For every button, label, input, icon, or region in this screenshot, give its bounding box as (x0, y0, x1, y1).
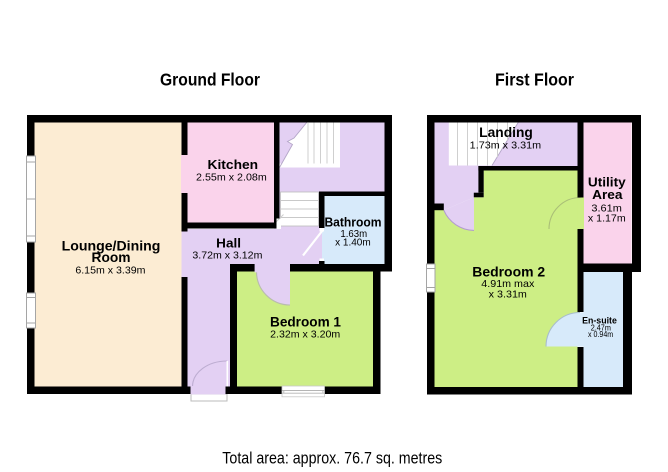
svg-text:x 1.17m: x 1.17m (588, 212, 626, 224)
svg-text:6.15m x 3.39m: 6.15m x 3.39m (75, 264, 145, 276)
svg-text:x 1.40m: x 1.40m (335, 237, 371, 248)
svg-text:Hall: Hall (216, 235, 241, 250)
svg-text:Bedroom 1: Bedroom 1 (270, 315, 341, 330)
svg-text:x 3.31m: x 3.31m (489, 289, 527, 301)
svg-text:Area: Area (592, 187, 623, 202)
svg-text:Room: Room (92, 249, 131, 265)
svg-text:1.73m x 3.31m: 1.73m x 3.31m (470, 140, 542, 152)
svg-text:Total area: approx. 76.7 sq. m: Total area: approx. 76.7 sq. metres (222, 448, 442, 467)
svg-text:First Floor: First Floor (495, 69, 574, 89)
svg-text:Bathroom: Bathroom (324, 215, 381, 230)
svg-text:Kitchen: Kitchen (208, 157, 259, 172)
svg-text:3.72m x 3.12m: 3.72m x 3.12m (192, 250, 262, 262)
svg-text:2.55m x 2.08m: 2.55m x 2.08m (196, 172, 267, 184)
svg-text:2.32m x 3.20m: 2.32m x 3.20m (270, 329, 340, 341)
svg-text:x 0.94m: x 0.94m (588, 330, 613, 339)
svg-text:Landing: Landing (479, 125, 533, 140)
svg-text:Ground Floor: Ground Floor (160, 69, 260, 89)
